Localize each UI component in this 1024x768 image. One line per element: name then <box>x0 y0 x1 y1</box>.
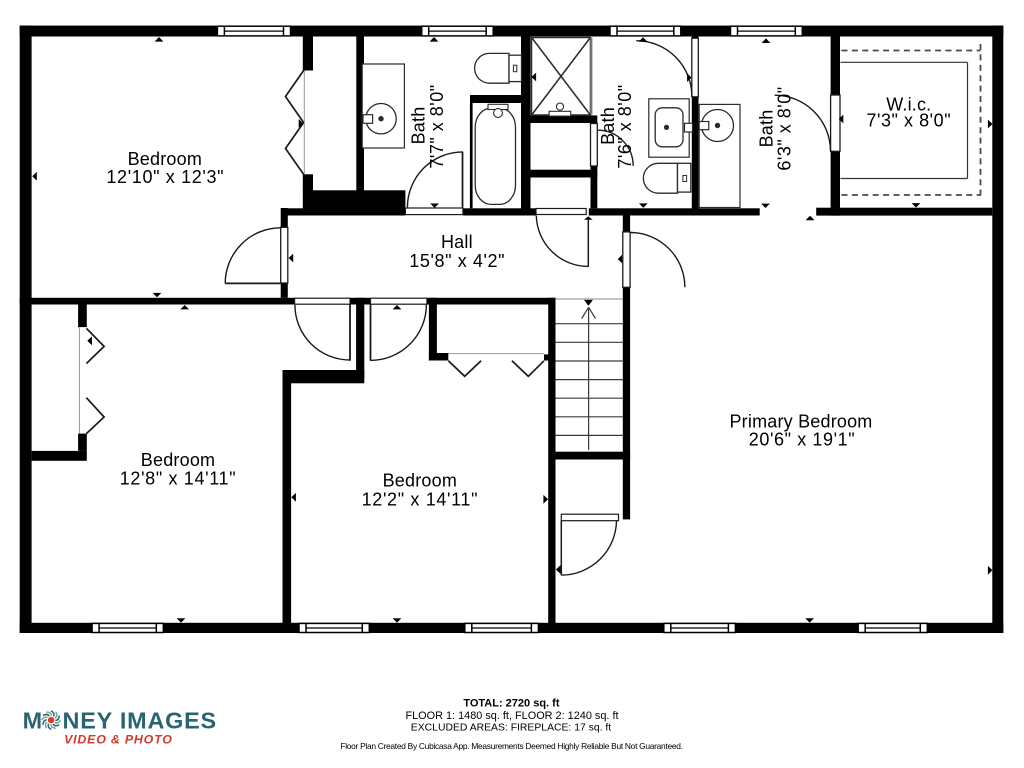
svg-text:VIDEO & PHOTO: VIDEO & PHOTO <box>64 733 173 747</box>
svg-text:12'2" x 14'11": 12'2" x 14'11" <box>362 490 479 510</box>
svg-text:7'7" x 8'0": 7'7" x 8'0" <box>427 84 447 168</box>
svg-text:TOTAL: 2720 sq. ft: TOTAL: 2720 sq. ft <box>463 698 560 710</box>
svg-text:NEY IMAGES: NEY IMAGES <box>63 708 217 734</box>
svg-text:6'3" x 8'0": 6'3" x 8'0" <box>775 86 795 170</box>
svg-text:Hall: Hall <box>441 232 473 252</box>
svg-text:Bedroom: Bedroom <box>383 471 457 491</box>
svg-text:Bedroom: Bedroom <box>141 450 215 470</box>
svg-text:Floor Plan Created By Cubicasa: Floor Plan Created By Cubicasa App. Meas… <box>340 741 682 751</box>
svg-text:7'6" x 8'0": 7'6" x 8'0" <box>615 84 635 168</box>
svg-text:20'6" x 19'1": 20'6" x 19'1" <box>749 430 856 450</box>
svg-text:7'3" x 8'0": 7'3" x 8'0" <box>866 111 951 131</box>
svg-text:Bath: Bath <box>409 107 429 145</box>
svg-text:15'8" x 4'2": 15'8" x 4'2" <box>409 251 505 271</box>
svg-text:Bedroom: Bedroom <box>128 149 202 169</box>
svg-text:12'10" x 12'3": 12'10" x 12'3" <box>106 167 224 187</box>
svg-text:FLOOR 1: 1480 sq. ft, FLOOR 2:: FLOOR 1: 1480 sq. ft, FLOOR 2: 1240 sq. … <box>405 710 618 722</box>
svg-text:Bath: Bath <box>757 110 777 148</box>
svg-text:EXCLUDED AREAS: FIREPLACE: 17: EXCLUDED AREAS: FIREPLACE: 17 sq. ft <box>411 723 611 734</box>
svg-text:Primary Bedroom: Primary Bedroom <box>729 412 872 432</box>
svg-text:12'8" x 14'11": 12'8" x 14'11" <box>120 469 237 489</box>
svg-text:M: M <box>23 708 43 734</box>
